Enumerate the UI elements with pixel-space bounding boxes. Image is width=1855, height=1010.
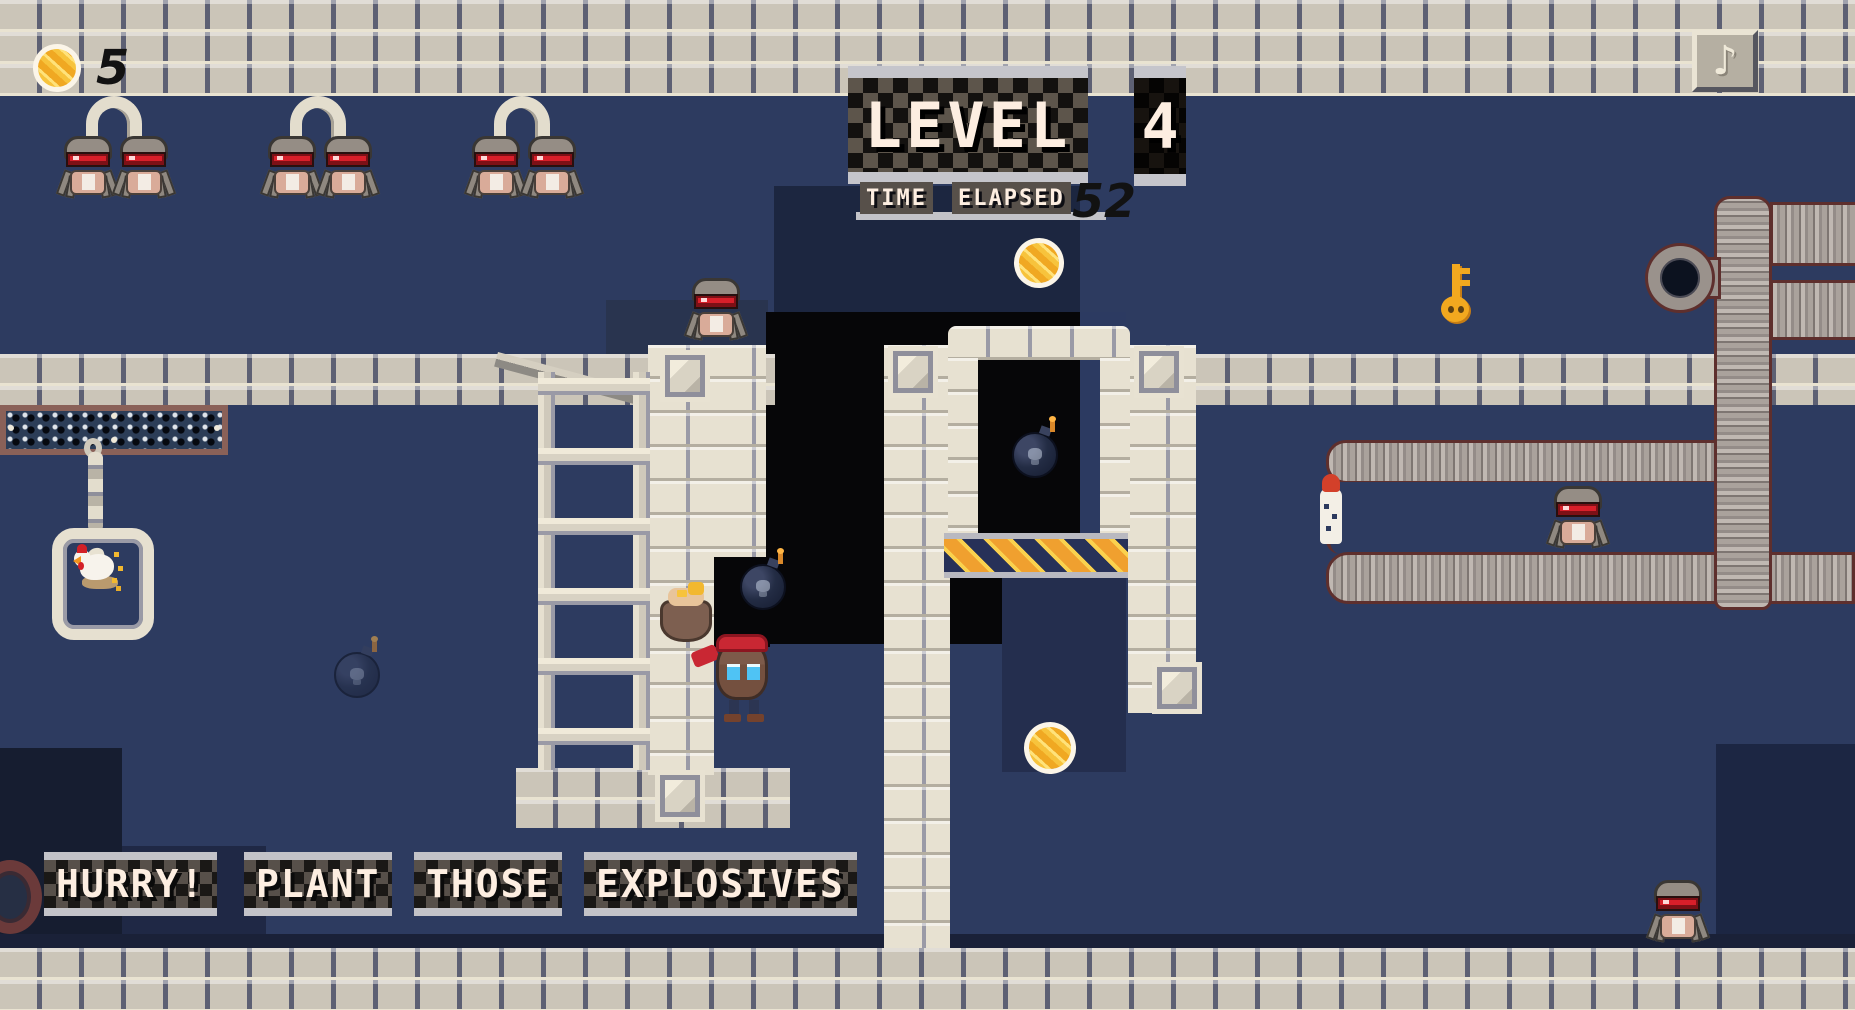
player-boot	[724, 714, 741, 722]
hanger-arc	[86, 96, 142, 140]
floor-brick-band	[0, 948, 1855, 1010]
message-word: HURRY!	[44, 852, 217, 916]
level-sign: LEVEL	[848, 66, 1088, 184]
player-boot	[747, 714, 764, 722]
bomb-fuse-tip	[1049, 416, 1056, 422]
player-eye-left	[727, 664, 740, 680]
spider-robot-sprite	[690, 278, 742, 340]
spider-robot-sprite	[470, 136, 522, 198]
robot-chest	[138, 174, 151, 190]
rocket-sprite	[1318, 474, 1346, 550]
rocket-body	[1320, 488, 1342, 544]
time-elapsed-value: 52	[1072, 174, 1136, 228]
time-label-word: ELAPSED	[952, 182, 1071, 214]
spider-robot-sprite	[118, 136, 170, 198]
spider-robot-sprite	[62, 136, 114, 198]
grate-rivets	[8, 425, 14, 431]
pipe-pillar-vertical	[1714, 196, 1772, 610]
bomb-skull-mark	[1028, 448, 1042, 460]
masonry-column-upper	[714, 345, 766, 557]
time-label-word: TIME	[860, 182, 933, 214]
music-note-icon: ♪	[1712, 38, 1738, 84]
robot-visor	[694, 294, 738, 309]
bomb-skull-mark	[756, 580, 770, 592]
spider-robot-sprite	[1552, 486, 1604, 548]
chicken-sprite	[74, 546, 124, 590]
chicken-comb	[77, 544, 87, 553]
level-number-sign: 4	[1134, 66, 1186, 186]
hazard-stripe-platform	[944, 533, 1128, 578]
robot-visor	[1556, 502, 1600, 517]
robot-chest	[1672, 918, 1685, 934]
golden-key-sprite	[1438, 264, 1472, 324]
spider-robot-sprite	[526, 136, 578, 198]
ladder-rung	[538, 448, 650, 465]
game-playfield[interactable]: 5 LEVEL 4 TIME ELAPSED 52 ♪ HURRY! PLANT…	[0, 0, 1855, 1010]
gold-sack-sprite	[660, 584, 714, 642]
robot-visor	[66, 152, 110, 167]
arch-leg-right	[1100, 358, 1130, 535]
music-toggle-button[interactable]: ♪	[1692, 30, 1758, 92]
ladder-rail-right	[633, 372, 650, 770]
sack-gold	[688, 582, 704, 595]
pipe-tunnel-top	[1326, 440, 1718, 484]
ladder-rung	[538, 518, 650, 535]
bomb-skull-mark	[350, 668, 364, 680]
dark-zone-bottom-right	[1716, 744, 1855, 960]
pipe-tunnel-bottom	[1326, 552, 1855, 604]
player-bandana	[716, 634, 768, 652]
robot-visor	[122, 152, 166, 167]
ladder-rung	[538, 728, 650, 745]
spider-robot-sprite	[322, 136, 374, 198]
player-eye-right	[747, 664, 760, 680]
robot-chest	[342, 174, 355, 190]
cage-chain	[88, 452, 103, 532]
sack-body	[660, 600, 712, 642]
ladder-rung	[538, 588, 650, 605]
arch-pillar-left	[884, 345, 950, 948]
key-bow	[1441, 296, 1469, 322]
hanger-arc	[290, 96, 346, 140]
rocket-markings	[1324, 504, 1329, 509]
chicken-wattle	[78, 562, 84, 570]
key-hole	[1448, 306, 1454, 313]
level-number: 4	[1141, 90, 1178, 163]
arch-leg-left	[948, 358, 978, 535]
robot-chest	[82, 174, 95, 190]
pipe-branch-lower	[1770, 280, 1855, 340]
coin-counter-value: 5	[96, 40, 129, 96]
robot-visor	[530, 152, 574, 167]
robot-visor	[1656, 896, 1700, 911]
masonry-column	[648, 345, 714, 775]
vent-grate	[0, 405, 228, 455]
bomb-fuse-tip	[371, 636, 378, 642]
pipe-opening-ring	[1648, 246, 1712, 310]
robot-chest	[546, 174, 559, 190]
pipe-branch-upper	[1770, 202, 1855, 266]
key-hole	[1458, 306, 1464, 313]
ladder-rung	[538, 658, 650, 675]
arch-pillar-right	[1128, 345, 1196, 713]
hanger-arc	[494, 96, 550, 140]
platform-below-ladder	[516, 768, 790, 828]
robot-chest	[710, 316, 723, 332]
beveled-tile-block	[888, 346, 938, 398]
beveled-tile-block	[655, 770, 705, 822]
robot-chest	[490, 174, 503, 190]
message-word: PLANT	[244, 852, 392, 916]
key-shaft	[1452, 264, 1460, 300]
bomb-fuse-tip	[777, 548, 784, 554]
beveled-tile-block	[1134, 346, 1184, 398]
ladder-rail-left	[538, 372, 555, 770]
player-character	[710, 632, 774, 722]
spider-robot-sprite	[1652, 880, 1704, 942]
key-tooth	[1460, 280, 1470, 286]
bomb-sprite	[1012, 424, 1062, 478]
bomb-sprite	[334, 644, 384, 698]
spider-robot-sprite	[266, 136, 318, 198]
level-label: LEVEL	[865, 89, 1072, 162]
pipe-tunnel-interior	[1326, 482, 1718, 554]
robot-chest	[286, 174, 299, 190]
beveled-tile-block	[660, 350, 710, 402]
ladder	[538, 372, 650, 770]
robot-visor	[326, 152, 370, 167]
robot-visor	[474, 152, 518, 167]
message-word: THOSE	[414, 852, 562, 916]
robot-chest	[1572, 524, 1585, 540]
beveled-tile-block	[1152, 662, 1202, 714]
message-word: EXPLOSIVES	[584, 852, 857, 916]
gold-sparkles	[114, 552, 119, 557]
robot-visor	[270, 152, 314, 167]
key-tooth	[1460, 268, 1470, 274]
arch-top	[948, 326, 1130, 360]
bomb-sprite	[740, 556, 790, 610]
ladder-rung	[538, 378, 650, 395]
rocket-tip	[1322, 474, 1340, 492]
